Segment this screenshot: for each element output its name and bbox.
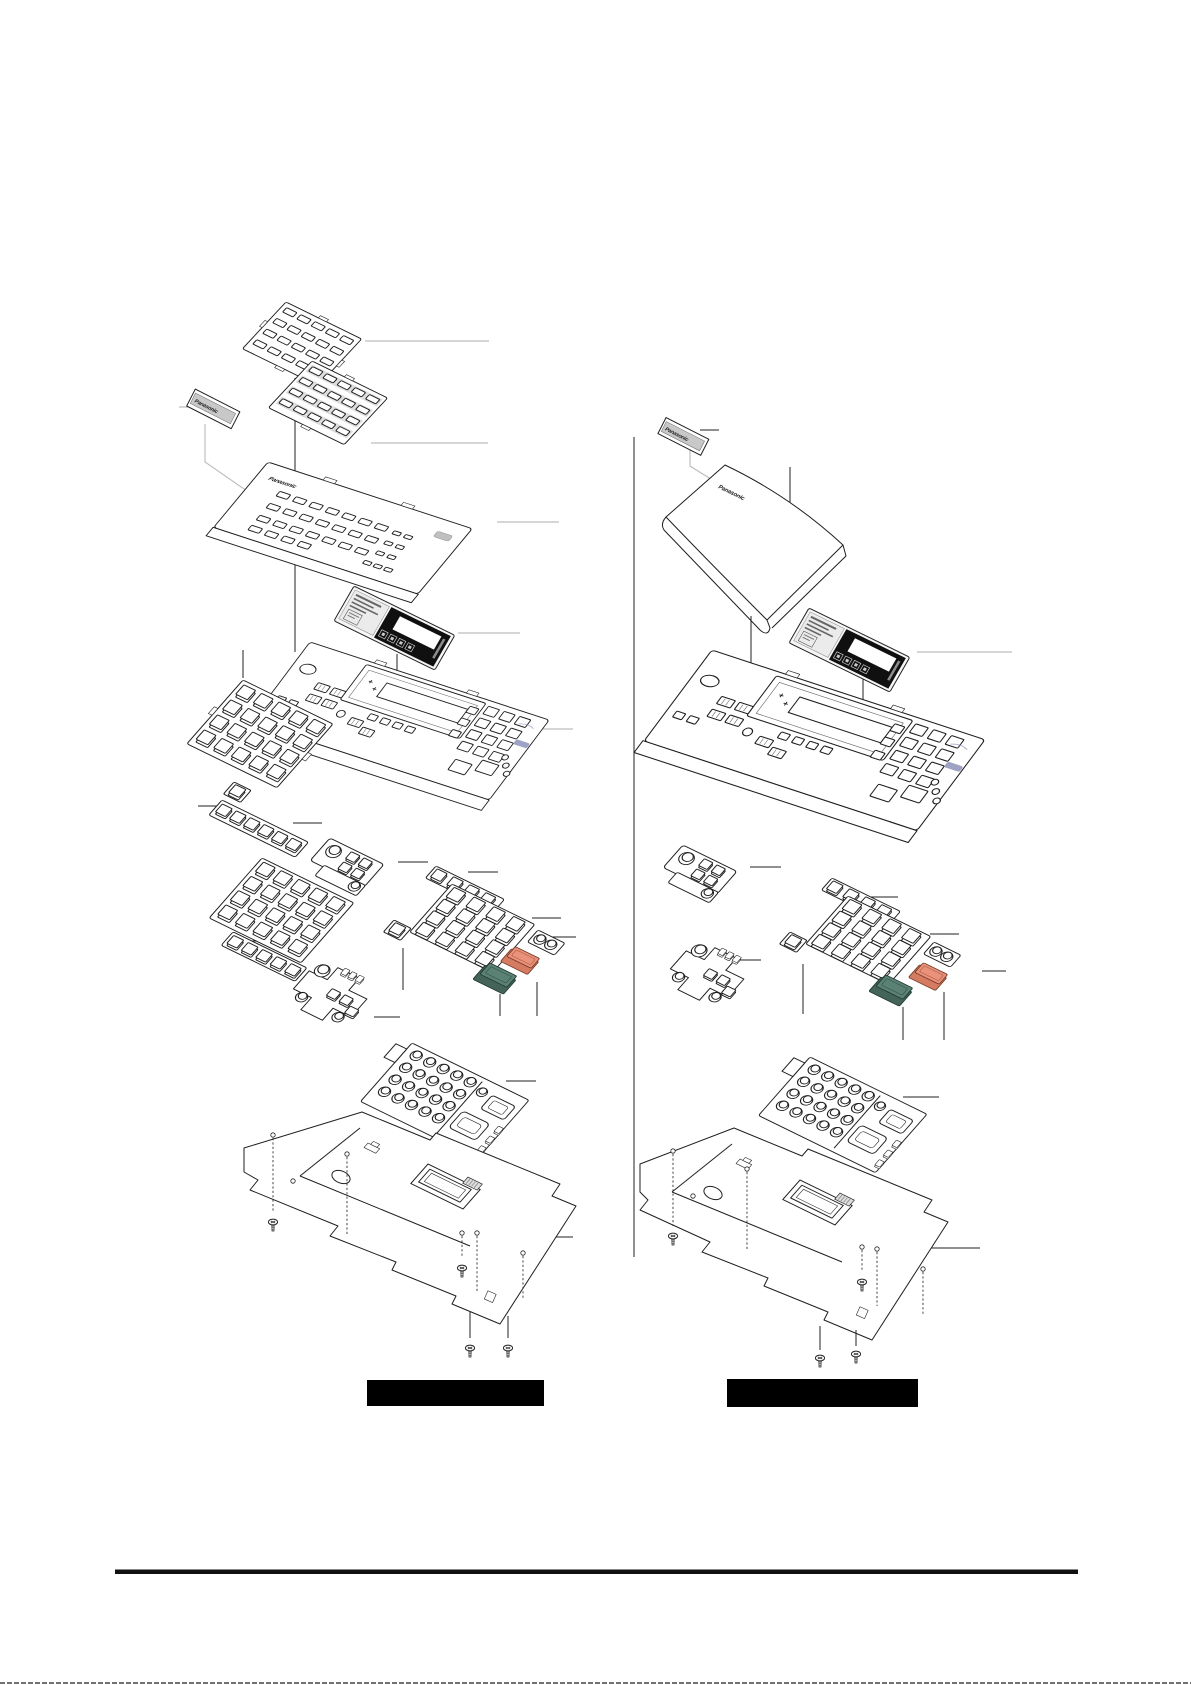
caption-bar-right — [727, 1379, 918, 1407]
screw — [268, 1219, 277, 1231]
key-strip-mat — [209, 800, 309, 857]
green-key-r — [869, 974, 915, 1006]
screw — [815, 1355, 824, 1367]
footer-rule — [115, 1570, 1078, 1575]
round-key-pair — [527, 930, 565, 955]
upper-housing: Panasonic — [206, 459, 475, 603]
manual-page: Panasonic Panasonic — [0, 0, 1191, 1685]
single-key-2 — [383, 920, 411, 940]
round-key-pair-r — [923, 942, 961, 967]
numeric-keypad-mat-r — [806, 896, 931, 984]
name-plate: Panasonic — [658, 418, 709, 456]
name-label-strip: Panasonic — [187, 389, 240, 429]
figure-left: Panasonic Panasonic — [179, 298, 576, 1406]
base-plate-r — [640, 1128, 948, 1367]
base-plate — [244, 1112, 576, 1357]
main-housing-r — [634, 646, 989, 843]
single-key — [223, 782, 251, 802]
single-key-r — [779, 932, 807, 952]
slotted-button-sheet — [266, 359, 389, 447]
screw — [503, 1345, 512, 1357]
salmon-key-r — [908, 962, 949, 991]
exploded-view-figure: Panasonic Panasonic — [0, 0, 1191, 1685]
screw — [668, 1233, 677, 1245]
screw — [851, 1351, 860, 1363]
display-overlay-card-r — [789, 608, 910, 692]
caption-bar-left — [367, 1380, 544, 1406]
blank-cover: Panasonic — [662, 465, 846, 633]
volume-key-cluster-r — [655, 845, 737, 903]
navigation-key-mat-r — [660, 937, 759, 1011]
figure-right: Panasonic Panasonic — [634, 418, 1012, 1407]
screw — [465, 1345, 474, 1357]
